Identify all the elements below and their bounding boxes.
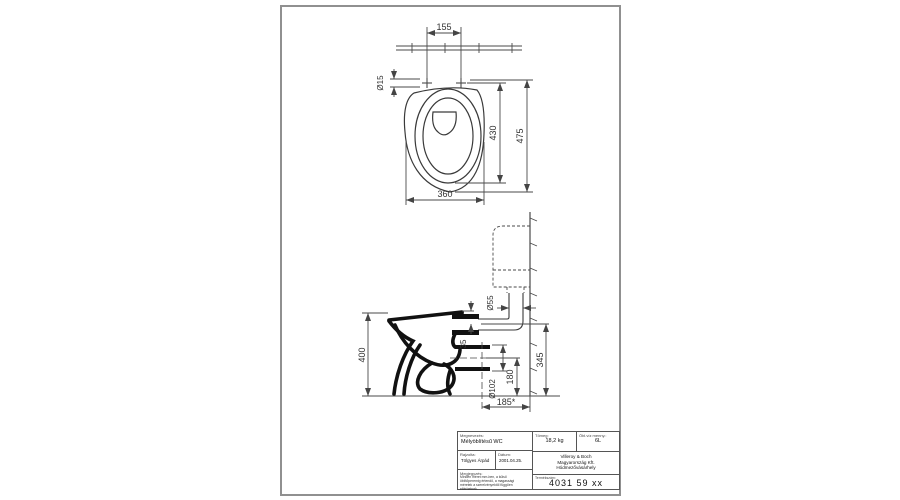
drawing-page: 155 Ø15 430 475 360 bbox=[0, 0, 900, 500]
weight-value: 18,2 kg bbox=[533, 438, 576, 445]
dim-flush-pipe-diameter: Ø55 bbox=[486, 295, 495, 311]
dim-rim-to-inlet: 35 bbox=[459, 339, 468, 348]
dim-hole-diameter: Ø15 bbox=[376, 75, 385, 91]
dim-bowl-width: 360 bbox=[437, 189, 452, 199]
date-value: 2001.04.25. bbox=[496, 457, 532, 464]
name-value: Mélyöblítésű WC bbox=[458, 438, 532, 445]
top-view-labels: 155 Ø15 430 475 360 bbox=[376, 22, 525, 199]
drawn-value: Tölgyes Árpád bbox=[458, 457, 495, 464]
wc-technical-drawing: 155 Ø15 430 475 360 bbox=[0, 0, 900, 500]
note-line: eltérhetnek. bbox=[458, 488, 532, 490]
title-block-note-cell: Megjegyzés: Minden méret mm-ben, a külső… bbox=[458, 470, 533, 490]
dim-outlet-wall-distance: 185* bbox=[497, 397, 516, 407]
company-line: Hódmezővásárhely bbox=[533, 465, 619, 471]
title-block-product-cell: Termékszám: 4031 59 xx bbox=[533, 475, 619, 490]
title-block-name-cell: Megnevezés: Mélyöblítésű WC bbox=[458, 432, 533, 451]
top-view bbox=[390, 27, 533, 205]
product-label: Termékszám: bbox=[533, 475, 556, 481]
title-block: Megnevezés: Mélyöblítésű WC Rajzolta: Tö… bbox=[457, 431, 620, 490]
title-block-date-cell: Dátum: 2001.04.25. bbox=[496, 451, 533, 470]
dim-hole-spacing: 155 bbox=[436, 22, 451, 32]
dim-outlet-height: 180 bbox=[505, 369, 515, 384]
dim-outlet-diameter: Ø102 bbox=[488, 379, 497, 399]
dim-total-length: 475 bbox=[515, 128, 525, 143]
sheet-frame bbox=[281, 6, 620, 495]
dim-bowl-inner-length: 430 bbox=[488, 125, 498, 140]
title-block-weight-cell: Tömeg: 18,2 kg bbox=[533, 432, 577, 452]
title-block-flush-cell: Öbl.víz menny.: 6L bbox=[577, 432, 619, 452]
dim-inlet-height: 345 bbox=[535, 352, 545, 367]
side-view bbox=[362, 212, 560, 412]
title-block-company-cell: Villeroy & Boch Magyarország Kft. Hódmez… bbox=[533, 452, 619, 475]
dim-total-height: 400 bbox=[357, 347, 367, 362]
title-block-drawn-cell: Rajzolta: Tölgyes Árpád bbox=[458, 451, 496, 470]
flush-value: 6L bbox=[577, 438, 619, 445]
